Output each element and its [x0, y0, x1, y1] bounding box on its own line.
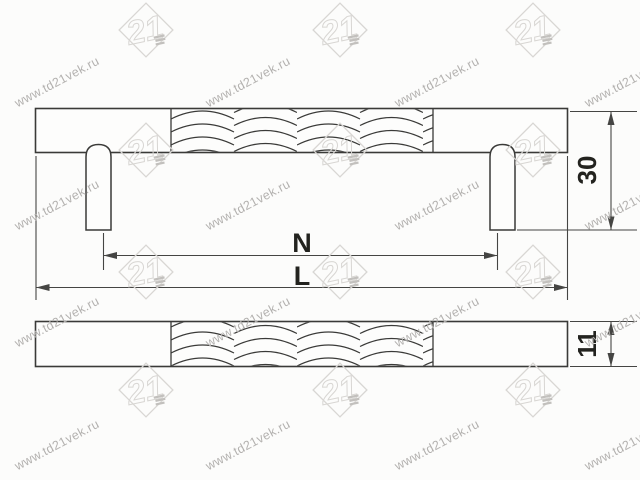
- side-view: [36, 322, 568, 367]
- front-view: [36, 109, 568, 231]
- knurled-texture-front: [171, 109, 433, 151]
- label-height-30: 30: [572, 156, 602, 185]
- technical-drawing: N L 30 11: [0, 0, 640, 480]
- label-hole-span: N: [292, 228, 312, 258]
- right-post: [490, 145, 515, 231]
- left-post: [86, 145, 111, 231]
- label-total-length: L: [294, 261, 311, 291]
- label-thickness-11: 11: [572, 330, 602, 358]
- knurled-texture-side: [171, 322, 433, 365]
- handle-drawing-canvas: N L 30 11 www.td21vek.ruwww.td21vek.ruww…: [0, 0, 640, 480]
